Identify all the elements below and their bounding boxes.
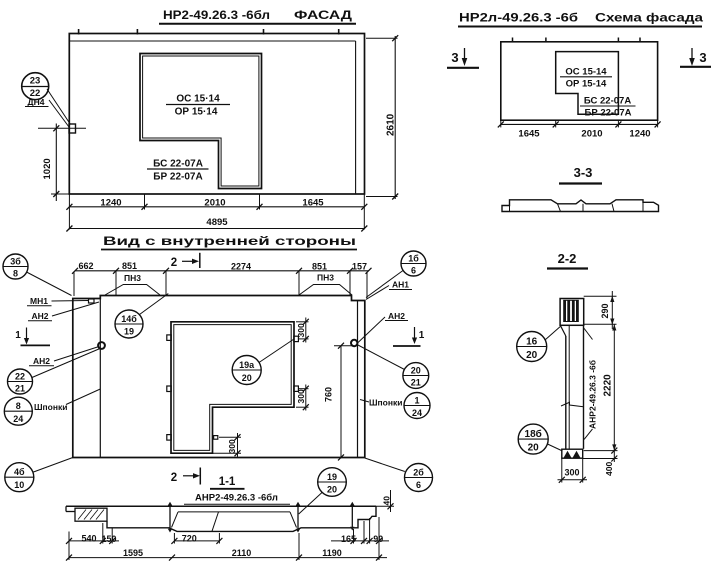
svg-text:720: 720: [182, 534, 197, 544]
svg-text:3-3: 3-3: [574, 165, 593, 180]
svg-text:1645: 1645: [518, 129, 540, 140]
svg-text:14б: 14б: [121, 314, 137, 324]
svg-text:БС 22-07А: БС 22-07А: [153, 159, 203, 170]
svg-text:1: 1: [419, 330, 425, 341]
svg-text:851: 851: [312, 262, 327, 272]
svg-text:АН2: АН2: [33, 356, 50, 366]
svg-text:23: 23: [30, 76, 41, 87]
svg-text:24: 24: [412, 408, 422, 418]
svg-text:БР 22-07А: БР 22-07А: [153, 172, 202, 183]
svg-text:ОР 15·14: ОР 15·14: [175, 107, 218, 118]
svg-text:400: 400: [604, 462, 614, 476]
svg-text:6: 6: [416, 480, 421, 490]
svg-text:20: 20: [411, 366, 421, 376]
svg-text:851: 851: [122, 261, 137, 271]
svg-text:ФАСАД: ФАСАД: [294, 8, 353, 22]
svg-text:540: 540: [81, 534, 96, 544]
svg-text:1240: 1240: [629, 129, 650, 140]
svg-text:Шпонки: Шпонки: [369, 398, 402, 408]
svg-text:2010: 2010: [204, 197, 225, 208]
svg-text:ОС 15·14: ОС 15·14: [176, 94, 220, 105]
svg-text:НР2-49.26.3 -6бл: НР2-49.26.3 -6бл: [163, 8, 270, 22]
svg-text:1020: 1020: [42, 158, 53, 179]
svg-text:20: 20: [526, 350, 538, 361]
svg-text:2б: 2б: [413, 468, 424, 478]
svg-text:1240: 1240: [100, 197, 121, 208]
svg-text:4б: 4б: [14, 467, 25, 477]
svg-text:1645: 1645: [302, 197, 324, 208]
svg-text:19: 19: [124, 327, 134, 337]
svg-text:1595: 1595: [123, 548, 143, 558]
svg-text:АН1: АН1: [392, 280, 409, 290]
svg-text:157: 157: [352, 262, 367, 272]
svg-text:1: 1: [15, 330, 21, 341]
svg-text:ДН4: ДН4: [28, 97, 45, 107]
svg-text:ОС 15-14: ОС 15-14: [565, 67, 607, 78]
svg-text:ПН3: ПН3: [124, 273, 141, 283]
svg-text:19: 19: [327, 472, 337, 482]
svg-text:2010: 2010: [581, 129, 602, 140]
svg-text:300: 300: [227, 439, 237, 453]
svg-text:АН2: АН2: [388, 311, 405, 321]
svg-text:20: 20: [242, 373, 252, 383]
svg-text:БС 22-07А: БС 22-07А: [584, 96, 632, 107]
svg-text:1б: 1б: [408, 254, 419, 264]
svg-text:21: 21: [411, 378, 421, 388]
svg-text:Вид с внутренней стороны: Вид с внутренней стороны: [103, 234, 356, 248]
svg-text:18б: 18б: [525, 428, 542, 440]
svg-text:Шпонки: Шпонки: [34, 402, 67, 412]
svg-text:АН2: АН2: [31, 311, 48, 321]
svg-text:20: 20: [528, 443, 540, 454]
svg-text:БР 22-07А: БР 22-07А: [585, 108, 632, 119]
svg-text:290: 290: [600, 303, 610, 318]
svg-text:НР2л-49.26.3 -6б: НР2л-49.26.3 -6б: [459, 11, 578, 25]
svg-text:2: 2: [171, 257, 177, 269]
svg-text:2220: 2220: [603, 374, 614, 397]
svg-text:150: 150: [101, 534, 116, 544]
svg-text:24: 24: [13, 414, 23, 424]
svg-text:2-2: 2-2: [558, 251, 577, 266]
svg-text:19а: 19а: [239, 360, 255, 370]
svg-text:21: 21: [15, 384, 25, 394]
svg-text:3: 3: [699, 50, 706, 65]
svg-text:8: 8: [13, 269, 18, 279]
svg-text:300: 300: [296, 323, 306, 337]
svg-text:1: 1: [414, 396, 419, 406]
svg-text:300: 300: [296, 389, 306, 403]
svg-text:1190: 1190: [322, 548, 342, 558]
svg-text:1-1: 1-1: [219, 476, 236, 488]
svg-text:662: 662: [78, 261, 93, 271]
svg-text:АНР2-49.26.3 -6бл: АНР2-49.26.3 -6бл: [195, 493, 278, 504]
svg-text:40: 40: [382, 496, 392, 506]
svg-text:Схема фасада: Схема фасада: [595, 11, 703, 25]
svg-text:АНР2-49.26.3 -6б: АНР2-49.26.3 -6б: [588, 360, 598, 429]
svg-text:90: 90: [373, 534, 383, 544]
svg-text:3: 3: [451, 50, 458, 65]
svg-text:МН1: МН1: [30, 296, 48, 306]
svg-text:8: 8: [16, 401, 21, 411]
svg-text:2610: 2610: [386, 113, 397, 136]
svg-text:4895: 4895: [206, 217, 228, 228]
svg-text:3б: 3б: [10, 257, 21, 267]
svg-text:2274: 2274: [231, 262, 251, 272]
svg-text:760: 760: [324, 387, 334, 402]
svg-text:2110: 2110: [232, 548, 252, 558]
svg-text:ПН3: ПН3: [317, 272, 334, 282]
svg-text:300: 300: [564, 468, 579, 478]
svg-text:6: 6: [411, 266, 416, 276]
svg-text:10: 10: [14, 480, 24, 490]
svg-text:16: 16: [526, 337, 538, 348]
svg-text:22: 22: [15, 372, 25, 382]
svg-text:2: 2: [171, 472, 177, 484]
svg-text:ОР 15-14: ОР 15-14: [566, 79, 607, 90]
svg-text:20: 20: [327, 485, 337, 495]
